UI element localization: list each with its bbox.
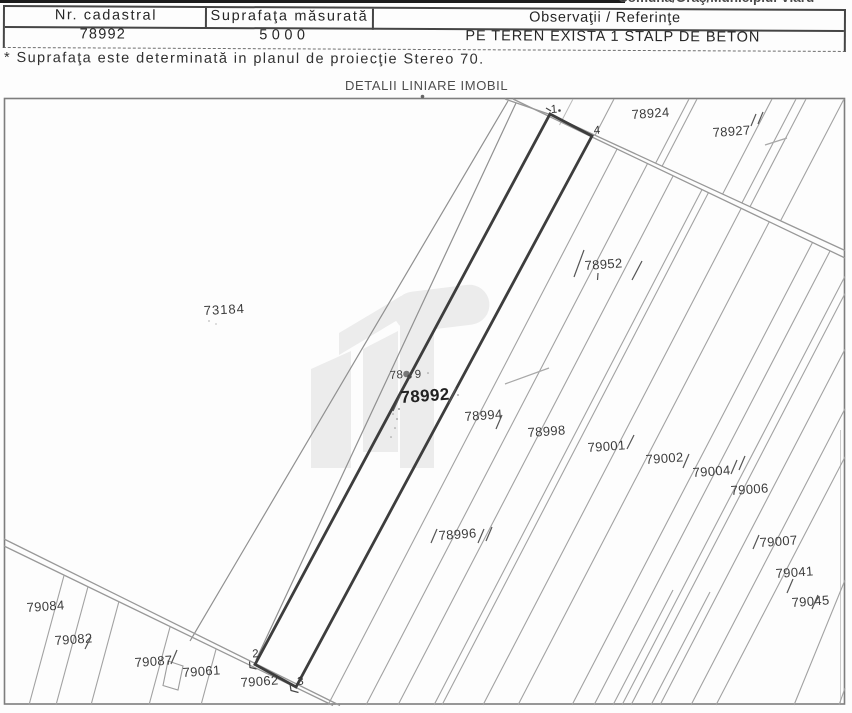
svg-text:79004: 79004 [692, 462, 731, 480]
svg-text:1: 1 [550, 104, 558, 116]
svg-text:79084: 79084 [26, 597, 65, 615]
svg-text:78996: 78996 [438, 525, 477, 543]
svg-text:79041: 79041 [775, 563, 814, 581]
svg-text:79002: 79002 [645, 449, 684, 467]
svg-text:78992: 78992 [400, 385, 450, 407]
svg-text:9: 9 [414, 369, 422, 381]
svg-text:79087: 79087 [134, 652, 173, 670]
svg-text:4: 4 [593, 125, 601, 137]
svg-text:79062: 79062 [240, 672, 279, 690]
svg-text:79045: 79045 [791, 592, 830, 610]
svg-text:2: 2 [252, 648, 260, 660]
svg-text:3: 3 [297, 676, 305, 688]
svg-text:78: 78 [389, 369, 403, 382]
svg-text:79001: 79001 [587, 437, 626, 455]
svg-text:73184: 73184 [203, 301, 245, 318]
svg-text:78927: 78927 [712, 122, 751, 140]
svg-text:78998: 78998 [527, 422, 566, 440]
svg-text:78924: 78924 [631, 104, 670, 122]
svg-text:79006: 79006 [730, 480, 769, 498]
svg-text:79007: 79007 [759, 532, 798, 550]
svg-text:78952: 78952 [584, 255, 623, 273]
svg-text:78994: 78994 [464, 406, 503, 424]
svg-text:79061: 79061 [182, 662, 221, 680]
